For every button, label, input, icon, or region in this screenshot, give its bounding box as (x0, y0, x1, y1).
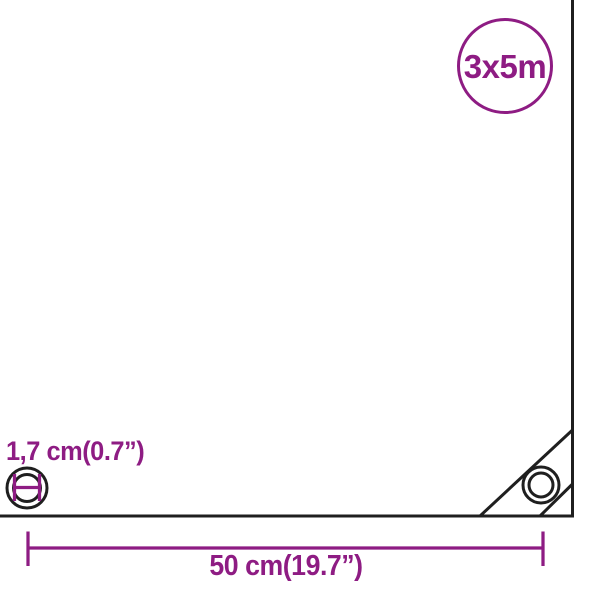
corner-detail (480, 430, 573, 516)
width-dimension-label: 50 cm(19.7”) (209, 552, 362, 581)
size-badge: 3x5m (457, 18, 553, 114)
tarpaulin-dimension-diagram: 3x5m 1,7 cm(0.7”) 50 cm(19.7”) (0, 0, 600, 600)
eyelet-detail (7, 468, 47, 508)
eyelet-diameter-label: 1,7 cm(0.7”) (6, 438, 144, 465)
corner-eyelet-inner-ring-icon (529, 473, 553, 497)
corner-stitch-line (540, 484, 573, 516)
size-badge-label: 3x5m (464, 50, 546, 83)
